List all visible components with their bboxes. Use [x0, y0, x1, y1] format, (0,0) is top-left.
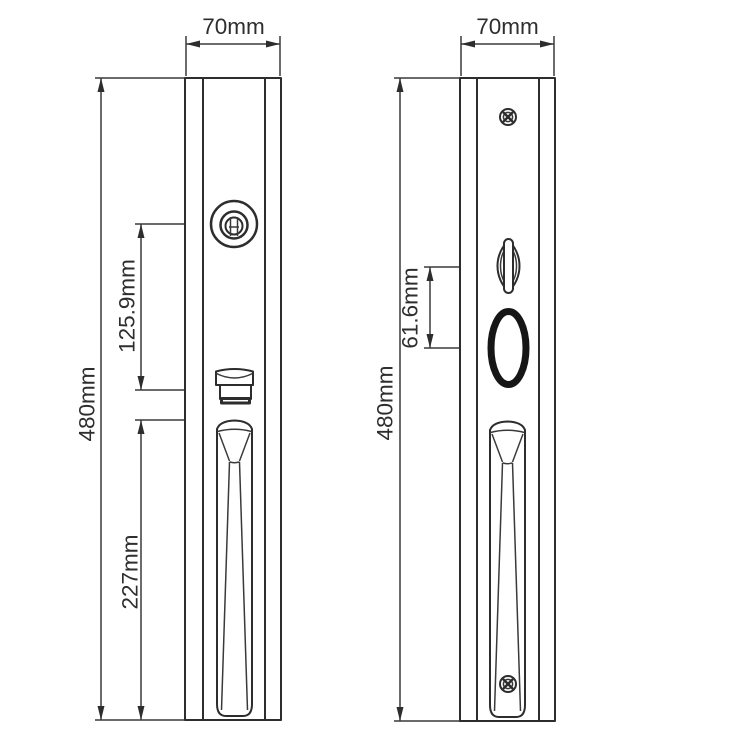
- screw-top-icon: [500, 109, 516, 125]
- door-handle-technical-drawing: 125.9mm 227mm 480mm 70mm: [0, 0, 750, 750]
- arrowhead: [138, 420, 145, 434]
- arrowhead: [397, 707, 404, 721]
- arrowhead: [98, 706, 105, 720]
- thumbturn-knob: [504, 239, 513, 293]
- dim-label-height-left: 480mm: [75, 366, 100, 441]
- arrowhead: [266, 41, 280, 48]
- dim-label-cylinder-to-latch: 125.9mm: [115, 259, 140, 353]
- right-view: 61.6mm 480mm 70mm: [373, 14, 556, 721]
- right-plate-outline: [460, 78, 555, 721]
- arrowhead: [461, 41, 475, 48]
- dim-label-height-right: 480mm: [373, 365, 398, 440]
- dim-label-width-right: 70mm: [476, 14, 539, 39]
- dim-label-width-left: 70mm: [202, 14, 265, 39]
- dim-label-handle-length: 227mm: [118, 534, 143, 609]
- arrowhead: [397, 78, 404, 92]
- arrowhead: [186, 41, 200, 48]
- arrowhead: [138, 224, 145, 238]
- dim-width-left: 70mm: [186, 14, 280, 76]
- arrowhead: [138, 376, 145, 390]
- dim-label-thumbturn-to-hole: 61.6mm: [398, 267, 423, 348]
- technical-drawing-page: 125.9mm 227mm 480mm 70mm: [0, 0, 750, 750]
- arrowhead: [138, 706, 145, 720]
- dim-width-right: 70mm: [461, 14, 554, 76]
- dim-height-right: 480mm: [373, 78, 461, 721]
- arrowhead: [427, 334, 434, 348]
- arrowhead: [540, 41, 554, 48]
- arrowhead: [98, 78, 105, 92]
- left-view: 125.9mm 227mm 480mm 70mm: [75, 14, 282, 720]
- screw-bottom-icon: [500, 676, 516, 692]
- arrowhead: [427, 267, 434, 281]
- dim-height-left: 480mm: [75, 78, 186, 720]
- right-plate: [460, 78, 555, 721]
- thumb-latch: [216, 369, 253, 403]
